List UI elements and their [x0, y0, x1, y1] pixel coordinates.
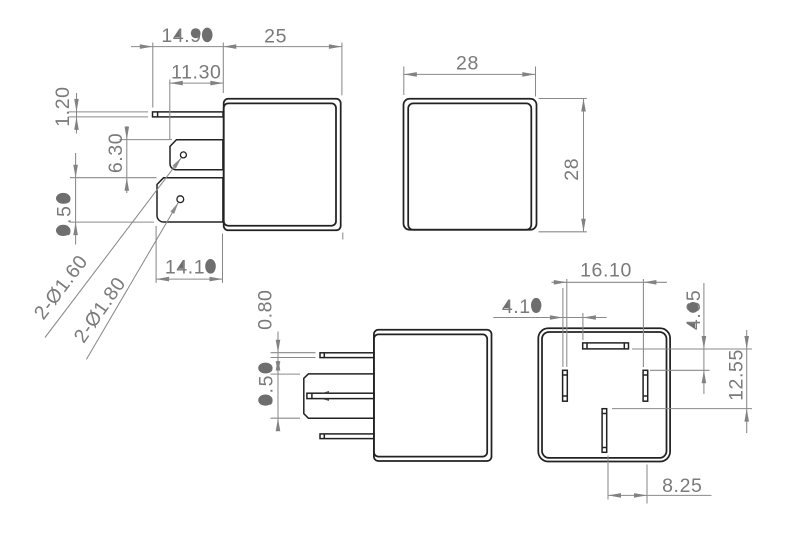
- svg-text:16.10: 16.10: [580, 260, 632, 282]
- svg-text:25: 25: [264, 26, 287, 48]
- svg-text:1.20: 1.20: [52, 86, 74, 126]
- svg-text:11.30: 11.30: [171, 61, 221, 83]
- svg-text:12.55: 12.55: [726, 349, 748, 401]
- svg-text:0.80: 0.80: [254, 290, 276, 330]
- svg-text:8.25: 8.25: [662, 475, 702, 497]
- svg-text:6.30: 6.30: [105, 133, 127, 173]
- svg-text:28: 28: [456, 52, 479, 74]
- svg-text:28: 28: [561, 158, 583, 181]
